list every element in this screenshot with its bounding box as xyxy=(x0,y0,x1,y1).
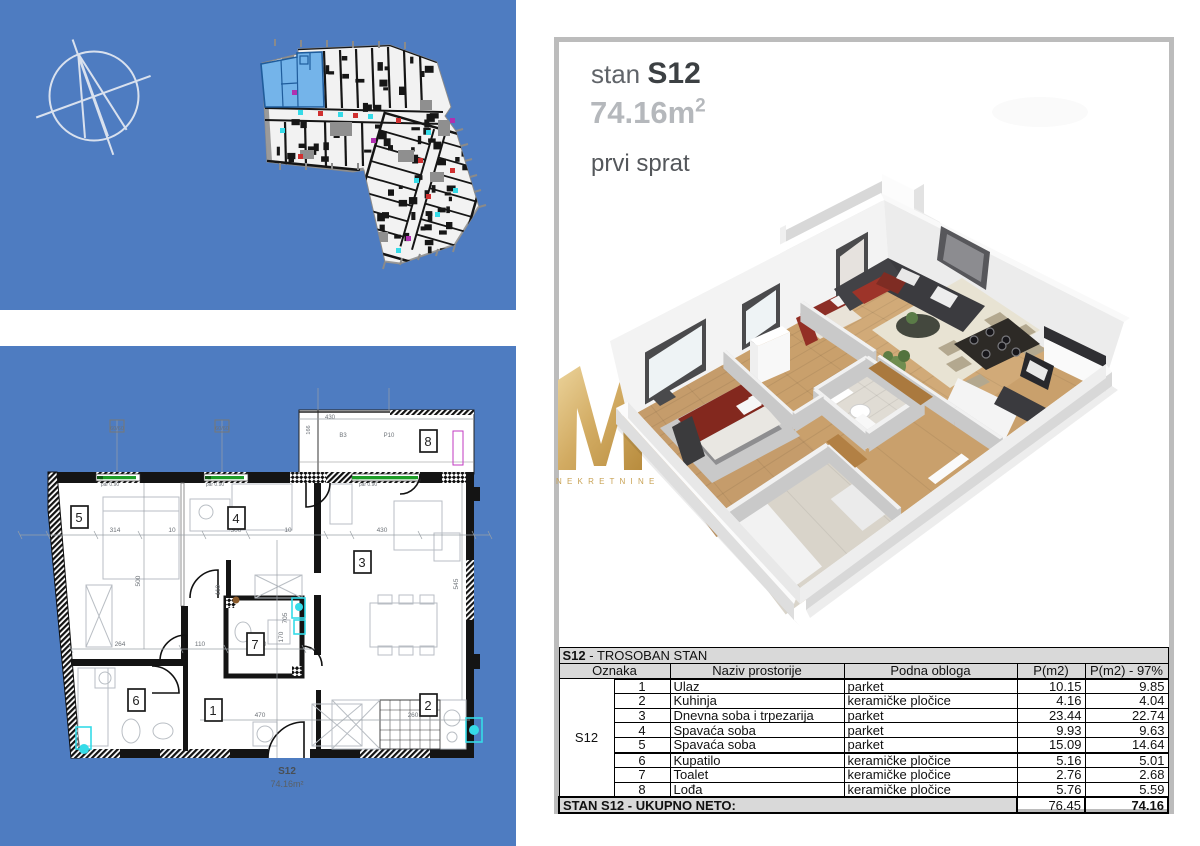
svg-text:166: 166 xyxy=(306,425,312,434)
svg-text:4: 4 xyxy=(232,511,239,526)
svg-text:314: 314 xyxy=(110,527,121,534)
svg-text:500: 500 xyxy=(135,575,142,586)
svg-text:470: 470 xyxy=(255,712,266,719)
svg-text:430: 430 xyxy=(325,415,336,421)
svg-text:10: 10 xyxy=(284,527,292,534)
svg-text:par 0.90: par 0.90 xyxy=(206,482,225,488)
svg-text:264: 264 xyxy=(115,641,126,648)
svg-text:545: 545 xyxy=(453,578,460,589)
svg-text:705: 705 xyxy=(282,612,289,623)
svg-text:260: 260 xyxy=(408,712,419,719)
svg-text:B3: B3 xyxy=(339,433,347,439)
svg-text:S12: S12 xyxy=(278,766,296,777)
svg-text:60/60: 60/60 xyxy=(110,426,124,432)
svg-text:430: 430 xyxy=(377,527,388,534)
svg-text:74.16m²: 74.16m² xyxy=(270,779,303,789)
svg-text:6: 6 xyxy=(132,693,139,708)
svg-text:par 0.90: par 0.90 xyxy=(101,482,120,488)
svg-text:5: 5 xyxy=(75,510,82,525)
svg-text:P10: P10 xyxy=(384,433,395,439)
svg-text:110: 110 xyxy=(195,641,206,648)
svg-text:par 0.90: par 0.90 xyxy=(359,482,378,488)
svg-text:2: 2 xyxy=(424,698,431,713)
svg-text:170: 170 xyxy=(278,631,285,642)
svg-text:1: 1 xyxy=(209,703,216,718)
svg-text:60/60: 60/60 xyxy=(215,426,229,432)
svg-text:3: 3 xyxy=(358,555,365,570)
svg-text:110: 110 xyxy=(215,584,222,595)
svg-text:8: 8 xyxy=(424,434,431,449)
svg-text:7: 7 xyxy=(251,637,258,652)
svg-text:10: 10 xyxy=(168,527,176,534)
